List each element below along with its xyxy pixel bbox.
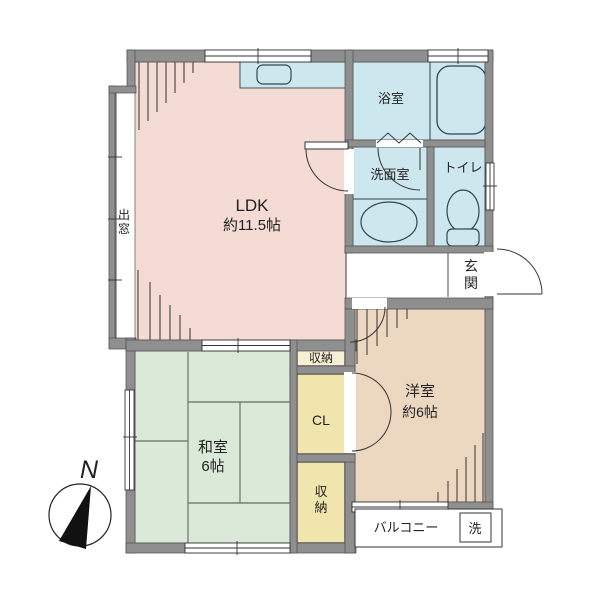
washbasin (361, 202, 417, 242)
ldk-door-panel (305, 142, 348, 149)
label-western-room: 洋室 (405, 383, 435, 400)
kitchen-counter (240, 62, 346, 88)
label-japanese-room: 和室 (198, 439, 228, 456)
label-washer: 洗 (468, 521, 481, 536)
front-door-arc (497, 249, 542, 294)
label-western-room-size: 約6帖 (402, 404, 438, 420)
compass-north-label: N (80, 456, 99, 484)
floor-plan: N LDK 約11.5帖 浴室 洗面室 トイレ 玄 関 収納 CL 収 納 和室… (0, 0, 600, 600)
label-ldk: LDK (235, 196, 269, 215)
kitchen-sink (257, 65, 291, 84)
label-entrance-1: 玄 (464, 258, 478, 274)
label-storage-bottom-2: 納 (314, 500, 327, 515)
label-washroom: 洗面室 (370, 167, 409, 182)
label-japanese-room-size: 6帖 (201, 458, 224, 475)
label-bay-window-2: 窓 (118, 221, 130, 236)
label-balcony: バルコニー (374, 520, 439, 535)
label-storage-bottom-1: 収 (314, 484, 327, 499)
label-closet: CL (312, 412, 330, 428)
label-bath: 浴室 (378, 91, 404, 106)
compass: N (49, 456, 111, 549)
label-entrance-2: 関 (464, 275, 478, 291)
label-storage-top: 収納 (309, 351, 333, 365)
label-ldk-size: 約11.5帖 (223, 217, 281, 234)
bathtub (437, 66, 486, 134)
label-toilet: トイレ (443, 160, 482, 175)
floor-plan-page: N LDK 約11.5帖 浴室 洗面室 トイレ 玄 関 収納 CL 収 納 和室… (0, 0, 600, 600)
toilet-bowl (447, 190, 479, 232)
label-bay-window-1: 出 (118, 208, 130, 222)
toilet-base (447, 229, 479, 246)
